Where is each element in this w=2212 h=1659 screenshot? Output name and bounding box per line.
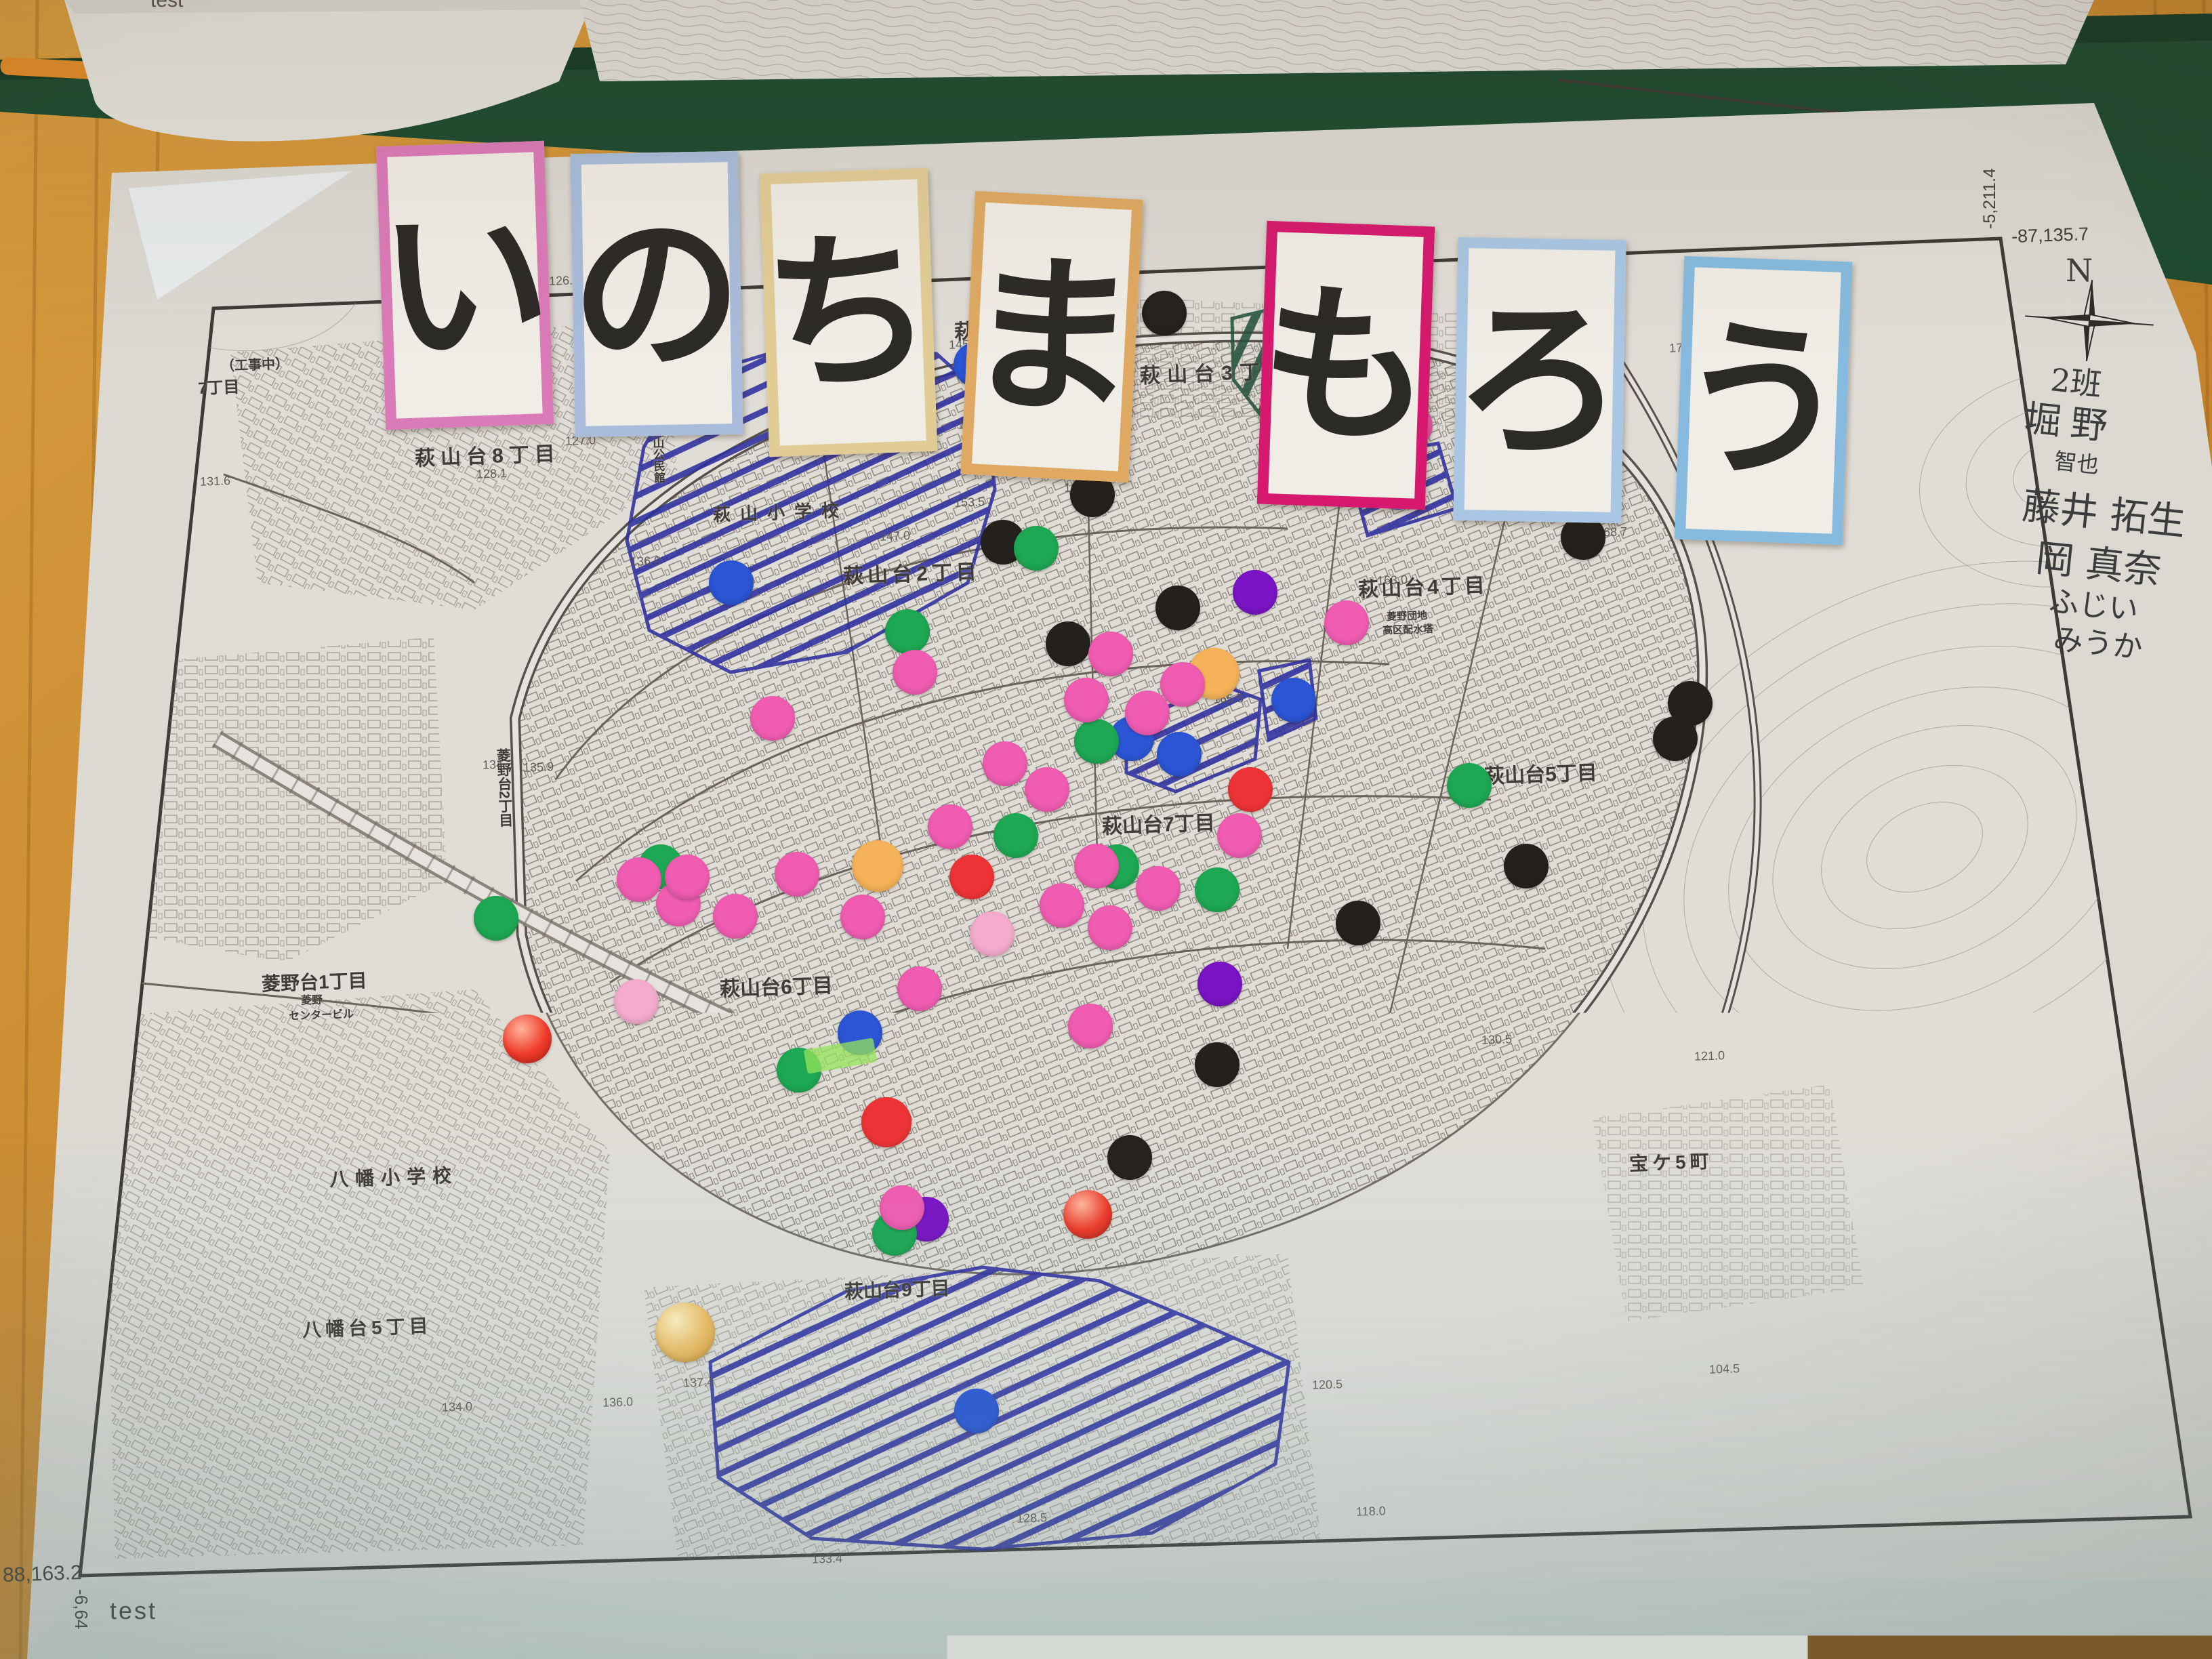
hatch-zone-blue	[627, 342, 995, 672]
hatch-zones-layer	[0, 0, 2212, 1659]
hatch-zone-blue	[1347, 443, 1457, 535]
hatch-zone-green	[1232, 297, 1396, 431]
hatch-zone-blue	[1126, 684, 1261, 792]
photo-of-hazard-map: 萩山台3丁目せと在宅福祉センター萩山台3丁目萩山台8丁目萩山台2丁目萩山台4丁目…	[0, 0, 2212, 1659]
hatch-zone-blue	[710, 1267, 1289, 1549]
hatch-zone-blue	[1259, 660, 1316, 740]
